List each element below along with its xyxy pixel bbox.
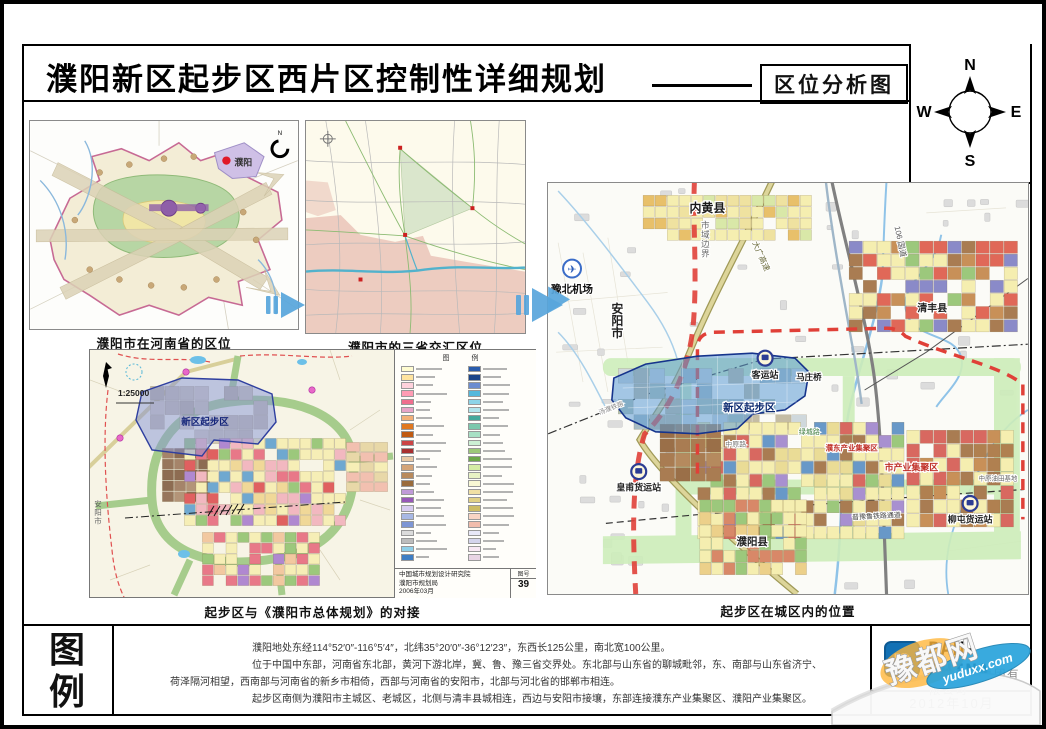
legend-title-box: 图 例 <box>22 626 114 716</box>
note-line-4: 起步区南侧为濮阳市主城区、老城区，北侧与清丰县城相连，西边与安阳市接壤，东部连接… <box>252 691 870 708</box>
legend-row <box>468 414 533 422</box>
legend-row <box>468 504 533 512</box>
compass-panel: N S W E <box>909 44 1032 184</box>
legend-row <box>468 488 533 496</box>
pan-china-logo-icon: p <box>884 641 920 677</box>
puyang-dot <box>222 156 230 164</box>
legend-row <box>401 480 466 488</box>
note-line-2: 位于中国中东部，河南省东北部，黄河下游北岸，冀、鲁、豫三省交界处。东北部与山东省… <box>252 657 870 674</box>
legend-row <box>401 512 466 520</box>
freight-station-icon <box>631 464 646 479</box>
compass-n: N <box>964 57 976 74</box>
description-notes: 濮阳地处东经114°52′0″-116°5′4″，北纬35°20′0″-36°1… <box>114 626 872 716</box>
legend-row <box>468 553 533 561</box>
title-block: p PAN-CHINA 泛华建设集团有限公司 2012年10月 <box>872 626 1032 716</box>
label-anyang: 安阳市 <box>610 301 624 339</box>
legend-header: 图 例 <box>395 350 536 363</box>
legend-row <box>468 521 533 529</box>
legend-row <box>401 488 466 496</box>
legend-row <box>401 471 466 479</box>
legend-row <box>401 414 466 422</box>
label-lvchenglu: 绿城路 <box>799 427 820 436</box>
compass-s: S <box>965 153 976 170</box>
map-henan-location: 濮阳 N <box>29 120 299 330</box>
legend-row <box>468 529 533 537</box>
legend-row <box>468 463 533 471</box>
scale-label: 1:25000 <box>118 388 149 398</box>
puyang-dot-label: 濮阳 <box>234 157 252 168</box>
legend-row <box>401 529 466 537</box>
sheet-number: 39 <box>511 579 536 590</box>
legend-char-li: 例 <box>49 671 85 713</box>
sheet-number-label: 图号 <box>511 569 536 579</box>
legend-row <box>468 480 533 488</box>
sheet-name-box: 区位分析图 <box>760 64 908 104</box>
label-puyangxian: 濮阳县 <box>737 535 769 548</box>
compass-w: W <box>916 104 932 121</box>
legend-row <box>468 431 533 439</box>
note-line-3: 荷泽隔河相望，西南部与河南省的新乡市相倚，西部与河南省的安阳市，北部与河北省的邯… <box>170 674 870 691</box>
legend-row <box>468 545 533 553</box>
legend-row <box>401 381 466 389</box>
legend-row <box>401 521 466 529</box>
sheet-date: 2012年10月 <box>872 692 1032 716</box>
page-title: 濮阳新区起步区西片区控制性详细规划 <box>46 54 607 99</box>
freight-station-icon <box>963 496 978 511</box>
legend-row <box>468 447 533 455</box>
label-zhongyuanlu: 中原路 <box>725 440 746 449</box>
legend-row <box>401 406 466 414</box>
compass-e: E <box>1011 104 1022 121</box>
legend-row <box>401 545 466 553</box>
legend-row <box>401 373 466 381</box>
label-qingfeng: 清丰县 <box>917 301 947 314</box>
svg-text:✈: ✈ <box>567 264 576 276</box>
caption-map-city-area: 起步区在城区内的位置 <box>547 601 1029 620</box>
map-tri-province <box>305 120 526 334</box>
anyang-label: 安阳市 <box>93 499 102 526</box>
legend-row <box>401 463 466 471</box>
arrow-connector-icon <box>266 290 306 320</box>
map-masterplan-panel: 新区起步区 1:25000 安阳市 <box>89 349 536 598</box>
map-masterplan: 新区起步区 1:25000 安阳市 <box>90 350 394 597</box>
label-keyunzhan: 客运站 <box>751 369 779 380</box>
legend-row <box>468 537 533 545</box>
attribution-bureau: 濮阳市规划局 <box>399 580 510 589</box>
legend-row <box>401 455 466 463</box>
mini-compass-n: N <box>278 131 282 137</box>
map-city-area: ✈ 内黄县 清丰县 安阳市 豫北机场 新区起步区 濮阳县 马庄桥 客运站 皇甫货… <box>547 182 1029 595</box>
legend-row <box>468 512 533 520</box>
legend-row <box>401 447 466 455</box>
legend-row <box>468 390 533 398</box>
legend-row <box>401 431 466 439</box>
legend-row <box>468 422 533 430</box>
legend-row <box>401 365 466 373</box>
legend-row <box>468 406 533 414</box>
title-separator <box>22 100 911 102</box>
caption-map-masterplan: 起步区与《濮阳市总体规划》的对接 <box>89 602 536 621</box>
map-legend-panel: 图 例 <box>394 350 536 568</box>
label-overlay: 新区起步区 <box>723 401 776 414</box>
airport-icon: ✈ <box>563 260 581 278</box>
legend-row <box>401 390 466 398</box>
axis-bar <box>149 204 208 211</box>
attribution-date: 2006年03月 <box>399 588 510 597</box>
legend-row <box>468 365 533 373</box>
plan-sheet: 濮阳新区起步区西片区控制性详细规划 区位分析图 N S W E <box>0 0 1046 729</box>
overlay-label: 新区起步区 <box>181 416 229 428</box>
legend-row <box>401 553 466 561</box>
legend-row <box>401 439 466 447</box>
legend-row <box>468 455 533 463</box>
legend-row <box>468 398 533 406</box>
map-attribution: 中国城市规划设计研究院 濮阳市规划局 2006年03月 图号 39 <box>394 568 536 598</box>
legend-row <box>401 496 466 504</box>
legend-row <box>468 373 533 381</box>
label-neihuang: 内黄县 <box>689 200 725 215</box>
legend-row <box>401 422 466 430</box>
label-huangfu: 皇甫货运站 <box>616 482 661 493</box>
label-pudong: 濮东产业集聚区 <box>826 443 879 453</box>
compass-rose-icon: N S W E <box>911 44 1030 180</box>
footer-band: 图 例 濮阳地处东经114°52′0″-116°5′4″，北纬35°20′0″-… <box>22 624 1032 716</box>
attribution-institute: 中国城市规划设计研究院 <box>399 571 510 580</box>
bus-station-icon <box>758 351 773 366</box>
legend-row <box>468 439 533 447</box>
note-line-1: 濮阳地处东经114°52′0″-116°5′4″，北纬35°20′0″-36°1… <box>252 640 870 657</box>
label-boundary: 市域边界 <box>700 220 710 258</box>
label-youtian: 中原油田基地 <box>979 474 1018 483</box>
legend-char-tu: 图 <box>49 629 85 671</box>
legend-row <box>468 471 533 479</box>
label-shichanye: 市产业集聚区 <box>885 462 939 473</box>
legend-row <box>468 496 533 504</box>
label-mazhuangqiao: 马庄桥 <box>796 372 822 382</box>
arrow-connector-icon <box>516 288 564 322</box>
title-dash-line <box>652 84 752 87</box>
legend-row <box>401 504 466 512</box>
label-liutun: 柳屯货运站 <box>948 513 993 524</box>
legend-row <box>468 381 533 389</box>
legend-row <box>401 537 466 545</box>
legend-row <box>401 398 466 406</box>
